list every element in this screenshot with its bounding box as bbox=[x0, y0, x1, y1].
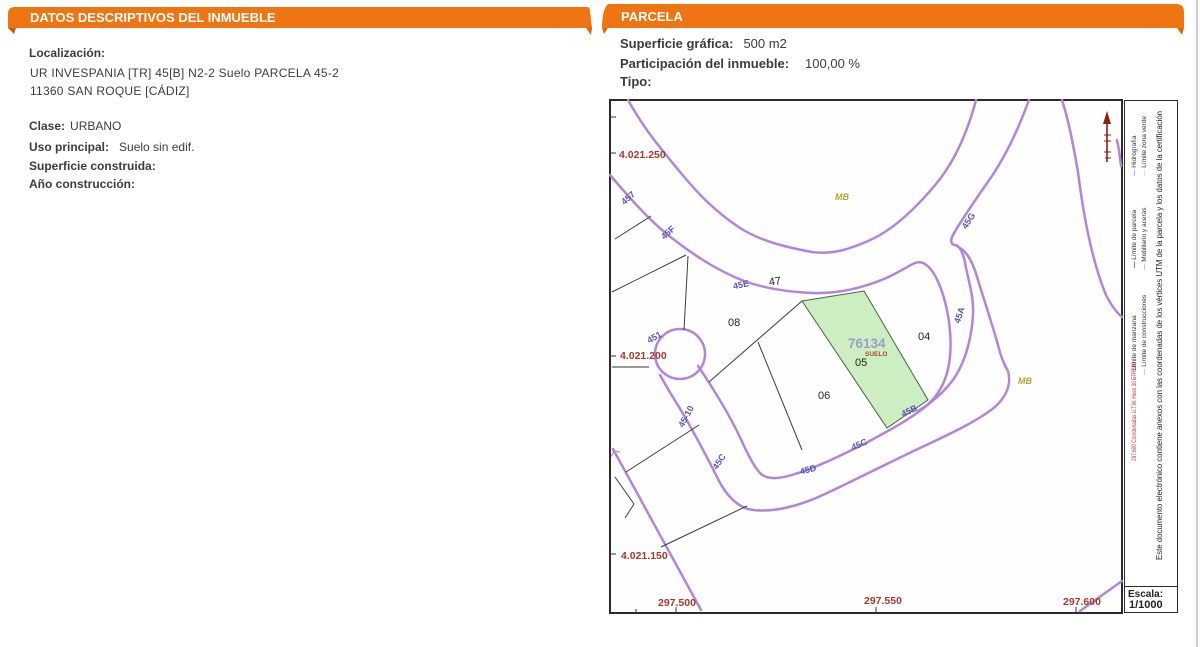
svg-text:08: 08 bbox=[728, 317, 740, 329]
svg-text:MB: MB bbox=[1018, 376, 1032, 386]
svg-text:297.550: 297.550 bbox=[864, 595, 902, 607]
svg-text:47: 47 bbox=[768, 275, 782, 289]
svg-text:MB: MB bbox=[835, 192, 849, 202]
svg-text:06: 06 bbox=[818, 390, 830, 402]
svg-text:297.600: 297.600 bbox=[1063, 596, 1101, 608]
svg-text:297.500: 297.500 bbox=[658, 597, 696, 609]
svg-text:4.021.150: 4.021.150 bbox=[621, 550, 668, 562]
svg-text:04: 04 bbox=[918, 331, 930, 343]
svg-text:SUELO: SUELO bbox=[865, 351, 887, 358]
svg-text:76134: 76134 bbox=[848, 336, 886, 351]
svg-text:4.021.200: 4.021.200 bbox=[620, 350, 667, 362]
svg-text:4.021.250: 4.021.250 bbox=[619, 149, 666, 161]
svg-text:05: 05 bbox=[855, 357, 867, 369]
